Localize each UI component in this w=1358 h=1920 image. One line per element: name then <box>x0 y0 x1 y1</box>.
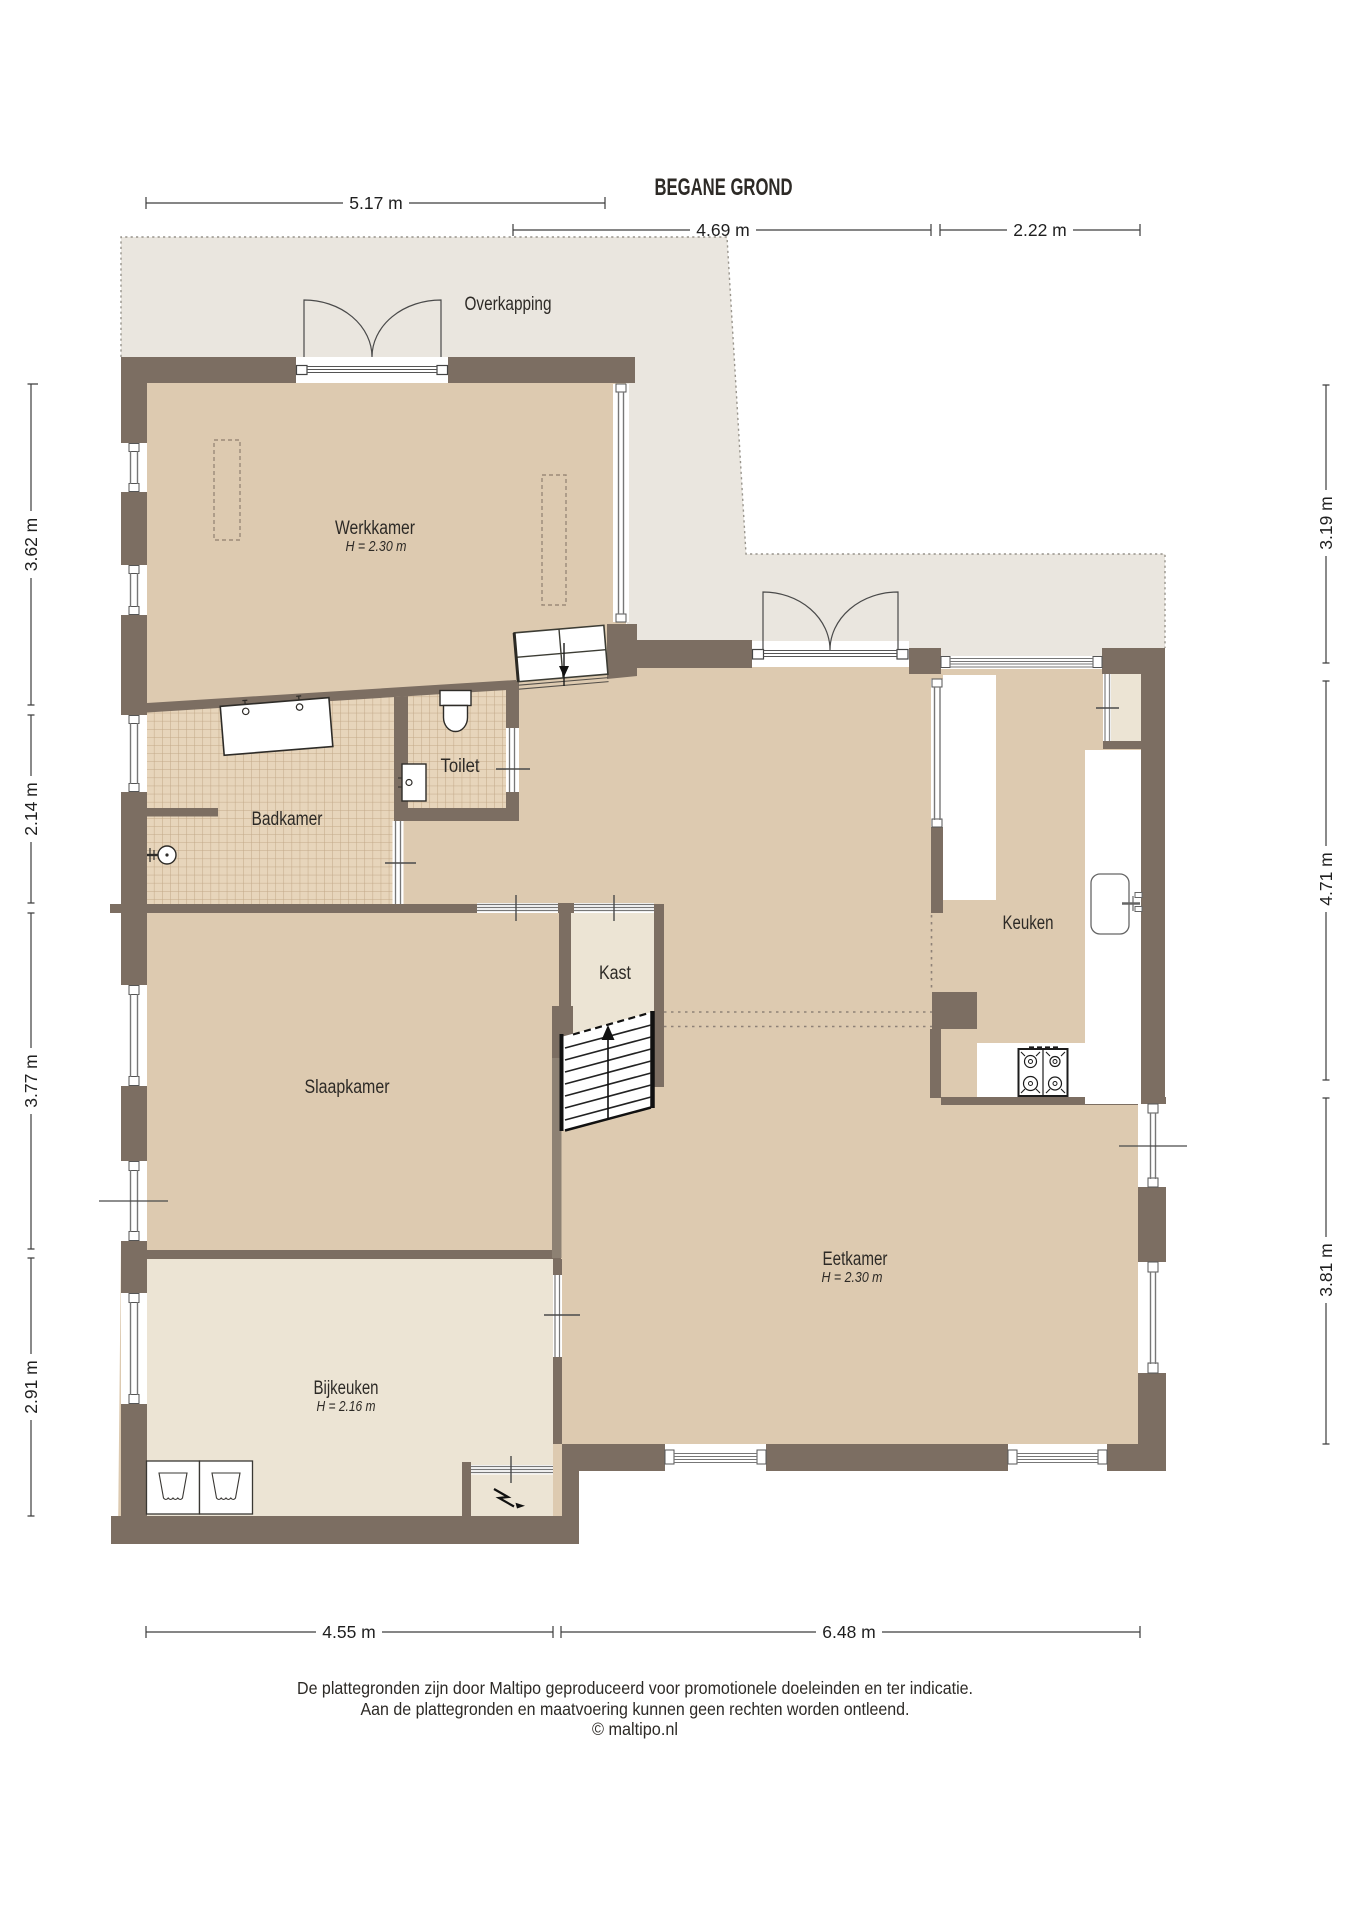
svg-text:BEGANE GROND: BEGANE GROND <box>655 174 793 201</box>
svg-text:3.19 m: 3.19 m <box>1316 496 1336 550</box>
svg-text:Keuken: Keuken <box>1003 913 1054 934</box>
svg-text:6.48 m: 6.48 m <box>822 1622 876 1642</box>
svg-text:Slaapkamer: Slaapkamer <box>305 1077 391 1098</box>
svg-text:4.71 m: 4.71 m <box>1316 852 1336 906</box>
svg-text:Kast: Kast <box>599 963 632 984</box>
svg-text:3.77 m: 3.77 m <box>21 1054 41 1108</box>
svg-text:Werkkamer: Werkkamer <box>335 518 416 539</box>
svg-text:Bijkeuken: Bijkeuken <box>314 1378 379 1399</box>
svg-text:H = 2.30 m: H = 2.30 m <box>822 1270 883 1286</box>
svg-text:Eetkamer: Eetkamer <box>823 1249 889 1270</box>
svg-text:3.62 m: 3.62 m <box>21 518 41 572</box>
svg-text:4.69 m: 4.69 m <box>696 220 750 240</box>
svg-text:5.17 m: 5.17 m <box>349 193 403 213</box>
svg-text:Aan de plattegronden en maatvo: Aan de plattegronden en maatvoering kunn… <box>361 1699 910 1719</box>
svg-text:2.91 m: 2.91 m <box>21 1360 41 1414</box>
svg-text:Badkamer: Badkamer <box>252 809 324 830</box>
svg-text:H = 2.16 m: H = 2.16 m <box>317 1399 376 1415</box>
svg-text:De plattegronden zijn door Mal: De plattegronden zijn door Maltipo gepro… <box>297 1678 973 1698</box>
svg-text:2.14 m: 2.14 m <box>21 782 41 836</box>
svg-text:4.55 m: 4.55 m <box>322 1622 376 1642</box>
svg-text:© maltipo.nl: © maltipo.nl <box>592 1719 678 1739</box>
svg-text:Overkapping: Overkapping <box>465 294 552 315</box>
svg-text:2.22 m: 2.22 m <box>1013 220 1067 240</box>
svg-text:H = 2.30 m: H = 2.30 m <box>346 539 407 555</box>
svg-text:Toilet: Toilet <box>441 756 481 777</box>
svg-text:3.81 m: 3.81 m <box>1316 1243 1336 1297</box>
